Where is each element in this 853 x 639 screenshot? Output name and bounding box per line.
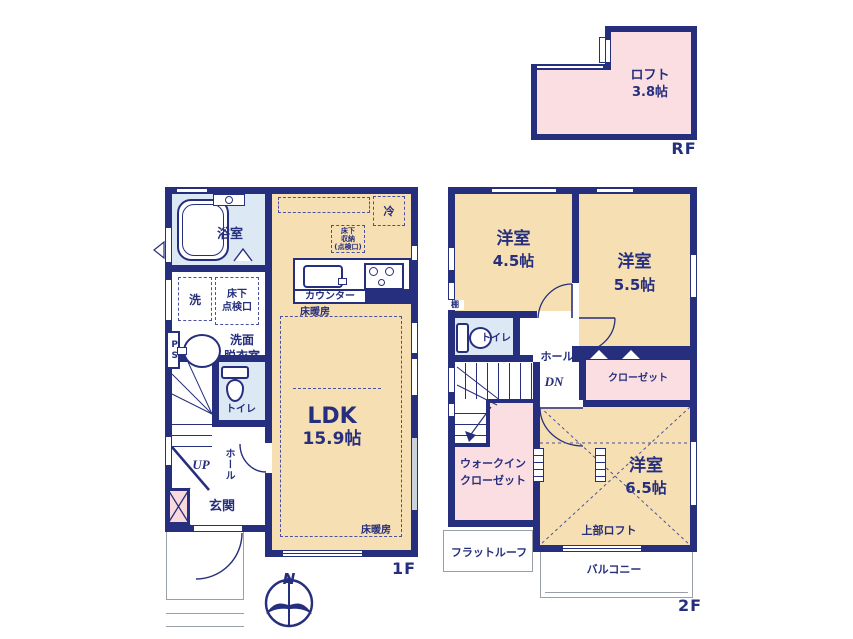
f1-kitchen-faucet [338, 278, 347, 285]
f2-wall-toilet-bottom [448, 355, 533, 362]
f2-balcony-inner-line [545, 592, 688, 593]
f2-stairs-winder [455, 363, 535, 447]
f1-wall-ldk-left [265, 194, 272, 550]
f2-toilet-label: トイレ [474, 332, 518, 345]
f2-window-left-room45-b [448, 283, 455, 299]
f1-basin-faucet [177, 347, 187, 355]
f2-room45-size-label: 4.5帖 [455, 252, 572, 272]
f2-wall-top [448, 187, 697, 194]
f1-underfloor-hatch-box: 床下 点検口 [215, 277, 259, 325]
f2-shelf-label: 棚 [446, 300, 464, 310]
f1-underfloor-storage-label: 床下 収納 (点検口) [334, 227, 361, 251]
f1-floor-heating-living-label: 床暖房 [352, 524, 400, 537]
f2-window-left-stairs-a [448, 368, 455, 392]
f2-closet-label: クローゼット [586, 372, 690, 385]
rf-loft-size-label: 3.8帖 [600, 85, 700, 102]
f1-window-right-1 [411, 246, 418, 260]
f1-ldk-size-label: 15.9帖 [272, 428, 392, 450]
rf-floor-label: RF [662, 139, 706, 160]
f2-window-top-room45 [492, 188, 556, 193]
f2-floor-label: 2F [668, 596, 712, 617]
f1-pantry-dash [278, 197, 370, 213]
f1-porch-step-2 [166, 626, 244, 627]
floor-plan-canvas: ロフト 3.8帖 RF 浴室 洗 床下 点検口 PS [0, 0, 853, 639]
f2-closet-door-icon-2 [619, 347, 643, 360]
f1-window-right-shutter [411, 438, 418, 510]
compass-icon: N [256, 566, 322, 632]
f1-stairs-winder [172, 362, 212, 494]
f1-bath-vanity-bowl [225, 196, 233, 204]
f1-floor-heating-divider [293, 388, 381, 389]
f1-window-left-washroom [165, 280, 172, 320]
f1-up-label: UP [184, 457, 218, 474]
f2-room55-name-label: 洋室 [579, 251, 690, 273]
f2-hall-label: ホール [534, 350, 580, 364]
f2-wic-label: ウォークイン クローゼット [446, 456, 540, 489]
f2-flat-roof-label: フラットルーフ [444, 546, 534, 560]
f1-window-top-bath [177, 188, 207, 193]
f1-porch-step-1 [166, 613, 244, 614]
f1-counter-label-band: カウンター [293, 289, 367, 304]
f1-stove-burner-1 [369, 267, 378, 276]
f1-window-bottom-slider [283, 550, 362, 557]
f2-window-top-room55 [597, 188, 633, 193]
f1-window-right-3 [411, 359, 418, 395]
f2-wall-closet-left [579, 346, 586, 407]
f1-stove-burner-3 [378, 279, 385, 286]
f1-entrance-door-arc [194, 531, 246, 583]
f1-washer-box: 洗 [178, 277, 212, 321]
f2-window-bottom-rail [563, 548, 641, 549]
f1-washer-label: 洗 [189, 291, 201, 308]
compass-north-label: N [283, 570, 296, 588]
f1-window-left-bath [165, 228, 172, 262]
f1-wall-bath-bottom [165, 265, 272, 272]
f1-fridge-box: 冷 [373, 196, 405, 226]
f2-window-bottom-room65 [563, 545, 641, 552]
f1-kitchen-sink [303, 265, 343, 288]
f1-counter-front [365, 289, 411, 304]
rf-window-left [605, 40, 611, 62]
f2-room45-door-arc [536, 282, 574, 320]
f1-window-left-stairs [165, 437, 172, 465]
rf-loft-name-label: ロフト [600, 68, 700, 85]
f1-entrance-label: 玄関 [194, 499, 250, 516]
f1-floor-label: 1F [382, 559, 426, 580]
f2-room55-door-arc [578, 317, 618, 355]
f1-underfloor-storage-box: 床下 収納 (点検口) [331, 225, 365, 253]
f1-stove-burner-2 [385, 267, 394, 276]
rf-window-top [537, 65, 603, 69]
f1-wall-toilet-left [212, 362, 219, 427]
f1-toilet-label: トイレ [215, 403, 267, 416]
f2-window-left-room45-a [448, 248, 455, 270]
f2-window-left-stairs-b [448, 404, 455, 416]
f2-toilet-tank [456, 323, 469, 353]
f1-bath-label: 浴室 [203, 227, 257, 244]
f1-window-right-2 [411, 323, 418, 353]
f1-underfloor-hatch-label: 床下 点検口 [222, 288, 252, 315]
f1-hall-label: ホール [222, 437, 235, 491]
f1-toilet-tank [221, 366, 249, 379]
f2-room65-loft-dashes [540, 407, 690, 545]
f1-wall-toilet-bottom [212, 420, 272, 427]
f1-hall-door-arc [238, 442, 270, 476]
f1-fridge-label: 冷 [384, 203, 395, 219]
f2-wall-wic-bottom [448, 520, 540, 527]
f1-washroom-label: 洗面 脱衣室 [214, 333, 270, 364]
f2-room55-size-label: 5.5帖 [579, 276, 690, 296]
f1-window-bottom-slider-rail [283, 553, 362, 554]
f2-dn-label: DN [534, 374, 574, 391]
f2-balcony-label: バルコニー [568, 563, 660, 577]
f1-counter-label: カウンター [305, 290, 355, 303]
f2-room45-name-label: 洋室 [455, 228, 572, 250]
f2-wall-room45-bottom [448, 311, 537, 318]
f2-loft-ladder-1 [533, 448, 544, 482]
f2-loft-ladder-2 [595, 448, 606, 482]
f2-window-right-room55 [690, 255, 697, 297]
f2-wall-divider-rooms [572, 194, 579, 283]
f1-vent-mark-icon [152, 240, 166, 260]
f1-entrance-storage-x [167, 488, 190, 525]
f1-bath-door-icon [231, 246, 255, 263]
